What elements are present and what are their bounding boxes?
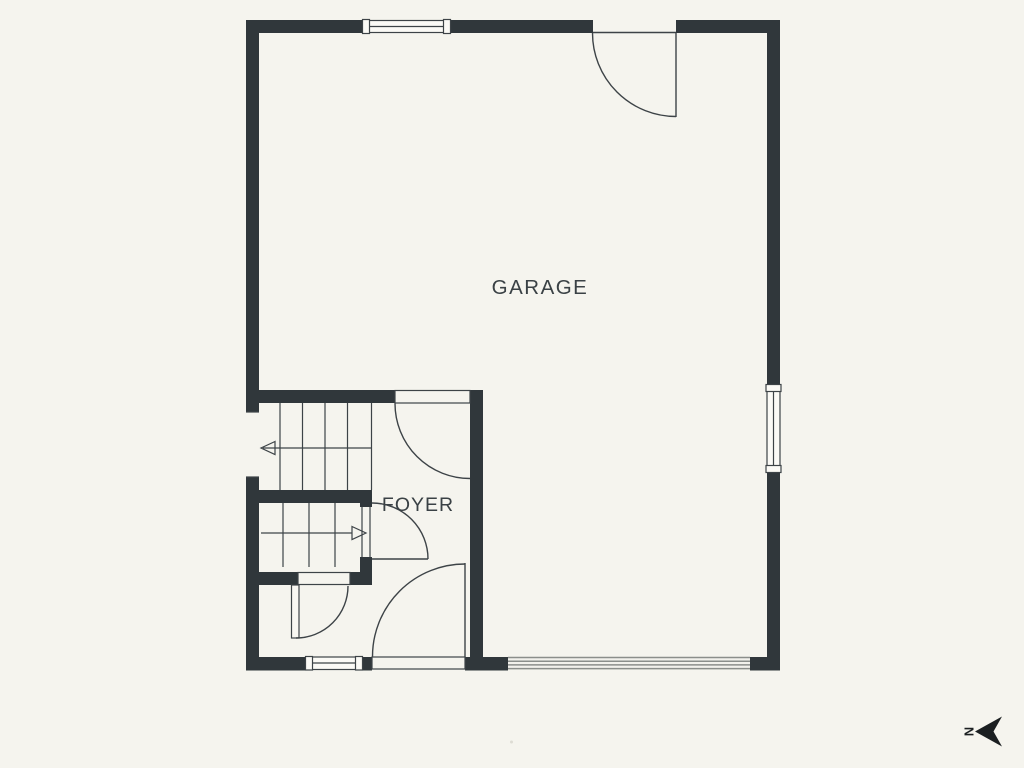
wall-right-lower-segment [767, 472, 780, 670]
wall-stair-stub [360, 490, 372, 507]
door-garage-entry-swing-arc [593, 33, 677, 117]
window-bottom [306, 657, 363, 671]
wall-closet-top-left [246, 572, 298, 585]
wall-foyer-right [470, 390, 483, 657]
window-bottom-left-cap [306, 657, 313, 671]
stairs-down [261, 503, 366, 567]
door-front-entry-opening [372, 657, 465, 669]
window-right-bottom-cap [766, 466, 781, 473]
wall-stair-middle [246, 490, 372, 503]
wall-top-left-segment [246, 20, 363, 33]
north-label: N [962, 727, 977, 736]
window-right [766, 385, 781, 473]
stairs-up [261, 403, 372, 490]
wall-left-upper-segment [246, 20, 259, 412]
stairs-up-arrow [261, 442, 371, 455]
floor-plan-page: GARAGE FOYER N [0, 0, 1024, 768]
wall-top-middle-segment [450, 20, 593, 33]
wall-foyer-divider-left [246, 390, 395, 403]
window-right-top-cap [766, 385, 781, 392]
wall-right-upper-segment [767, 20, 780, 385]
wall-bottom-segment-2 [362, 657, 372, 671]
door-garage-to-foyer-swing-arc [395, 404, 470, 479]
door-garage-to-foyer [395, 391, 470, 479]
interior-walls [246, 390, 483, 657]
door-closet [292, 573, 351, 639]
wall-closet-top-right [350, 572, 372, 585]
door-garage-entry [593, 33, 677, 118]
stairs-down-arrowhead [352, 527, 366, 540]
stairs-down-arrow [261, 527, 366, 540]
door-front-entry-swing-arc [373, 564, 466, 657]
compass: N [962, 717, 1002, 747]
garage-label: GARAGE [492, 276, 589, 299]
door-garage-to-foyer-opening [395, 391, 470, 404]
door-front-entry [372, 563, 465, 669]
floor-plan-drawing: GARAGE FOYER N [0, 0, 1024, 768]
wall-bottom-right-segment [750, 657, 780, 671]
door-closet-opening [298, 573, 350, 585]
wall-top-right-segment [676, 20, 780, 33]
wall-bottom-left-segment [246, 657, 306, 671]
wall-bottom-segment-3 [465, 657, 508, 671]
door-closet-leaf [292, 585, 300, 638]
watermark-dot [510, 741, 513, 744]
north-arrow-icon [975, 717, 1002, 747]
garage-door-panel [508, 657, 750, 670]
window-top-left-cap [363, 20, 370, 34]
garage-door [508, 657, 750, 670]
window-top-right-cap [444, 20, 451, 34]
foyer-label: FOYER [382, 494, 454, 516]
door-closet-swing-arc [296, 586, 348, 638]
window-bottom-right-cap [356, 657, 363, 671]
window-top [363, 20, 451, 34]
